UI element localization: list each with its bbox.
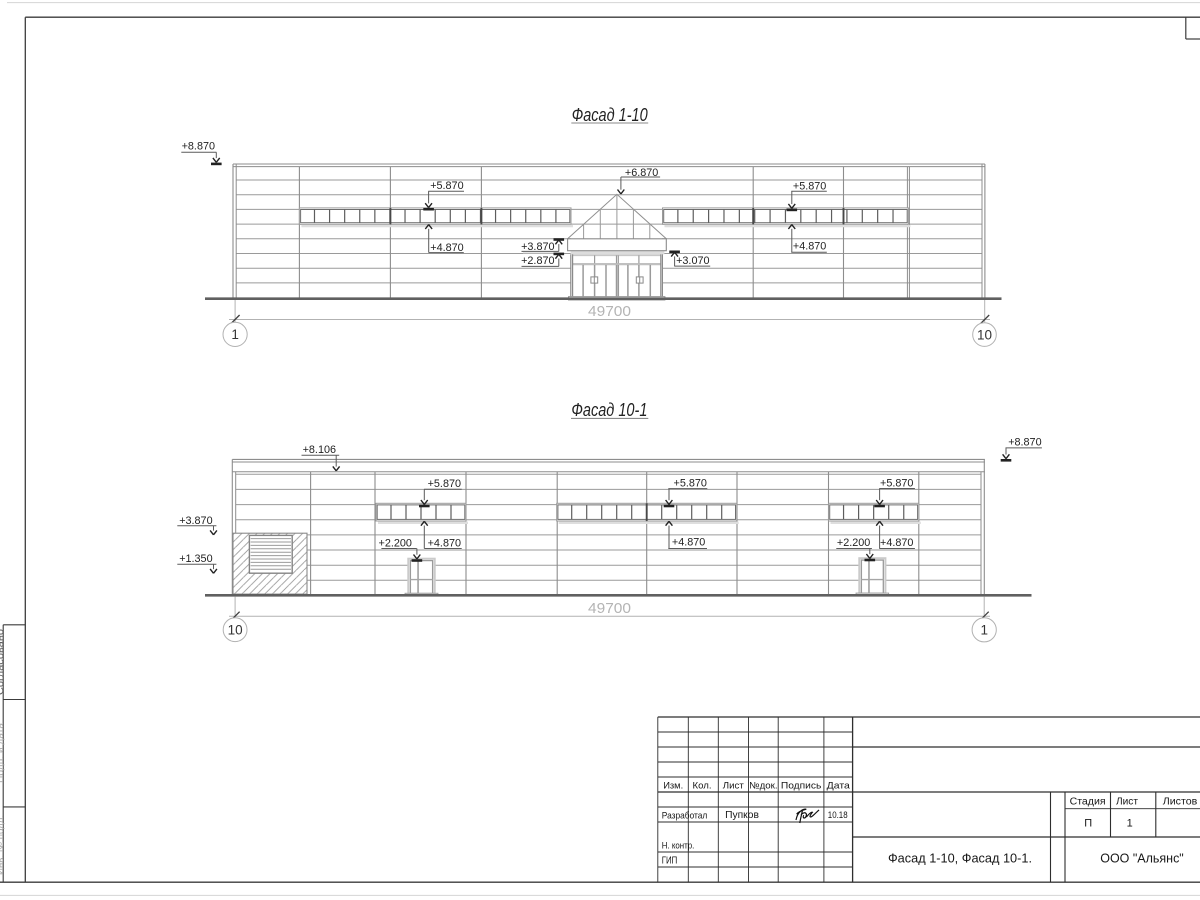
svg-text:Дата: Дата <box>827 781 851 792</box>
svg-text:+3.070: +3.070 <box>676 255 709 267</box>
svg-text:Изм.: Изм. <box>663 781 683 792</box>
svg-text:+8.106: +8.106 <box>303 444 336 456</box>
svg-text:+5.870: +5.870 <box>428 478 461 490</box>
svg-text:+2.200: +2.200 <box>837 537 870 549</box>
svg-text:Подпись: Подпись <box>781 781 822 792</box>
svg-text:+4.870: +4.870 <box>428 537 461 549</box>
svg-text:+5.870: +5.870 <box>793 180 826 192</box>
svg-text:ГИП: ГИП <box>662 856 678 867</box>
svg-text:ООО "Альянс": ООО "Альянс" <box>1100 851 1184 866</box>
svg-text:Листов: Листов <box>1163 796 1198 807</box>
svg-text:П: П <box>1084 818 1092 830</box>
svg-text:1: 1 <box>1127 818 1133 830</box>
svg-text:Инв. № подл.: Инв. № подл. <box>0 815 5 875</box>
svg-text:10: 10 <box>228 623 243 638</box>
svg-text:+2.870: +2.870 <box>521 255 554 267</box>
svg-text:Подп. и дата: Подп. и дата <box>0 722 5 783</box>
svg-text:№док.: №док. <box>749 781 778 792</box>
svg-text:1: 1 <box>980 623 988 638</box>
svg-text:Согласовано: Согласовано <box>0 628 5 695</box>
svg-text:Разработал: Разработал <box>662 810 708 821</box>
svg-text:Стадия: Стадия <box>1070 797 1106 808</box>
svg-text:Лист: Лист <box>1116 797 1138 808</box>
svg-text:+1.350: +1.350 <box>179 553 212 565</box>
svg-text:Фасад 1-10: Фасад 1-10 <box>572 104 649 125</box>
svg-text:10.18: 10.18 <box>828 810 848 820</box>
svg-text:+8.870: +8.870 <box>182 140 215 152</box>
svg-text:49700: 49700 <box>588 600 631 617</box>
svg-text:+4.870: +4.870 <box>793 240 826 252</box>
svg-text:49700: 49700 <box>588 303 631 320</box>
svg-text:Пупков: Пупков <box>725 810 759 821</box>
svg-text:Лист: Лист <box>723 781 745 792</box>
svg-text:+5.870: +5.870 <box>880 477 913 489</box>
svg-text:1: 1 <box>231 327 239 342</box>
svg-text:Фасад 1-10, Фасад 10-1.: Фасад 1-10, Фасад 10-1. <box>888 851 1032 865</box>
svg-text:+8.870: +8.870 <box>1008 436 1041 448</box>
svg-text:+5.870: +5.870 <box>674 478 707 490</box>
svg-text:Фасад 10-1: Фасад 10-1 <box>571 399 647 420</box>
svg-text:+2.200: +2.200 <box>379 537 412 549</box>
svg-text:+4.870: +4.870 <box>672 537 705 549</box>
svg-text:Кол.: Кол. <box>693 781 712 792</box>
svg-text:Н. контр.: Н. контр. <box>662 841 695 852</box>
svg-text:10: 10 <box>977 327 992 342</box>
svg-text:+5.870: +5.870 <box>430 180 463 192</box>
svg-text:+4.870: +4.870 <box>880 537 913 549</box>
